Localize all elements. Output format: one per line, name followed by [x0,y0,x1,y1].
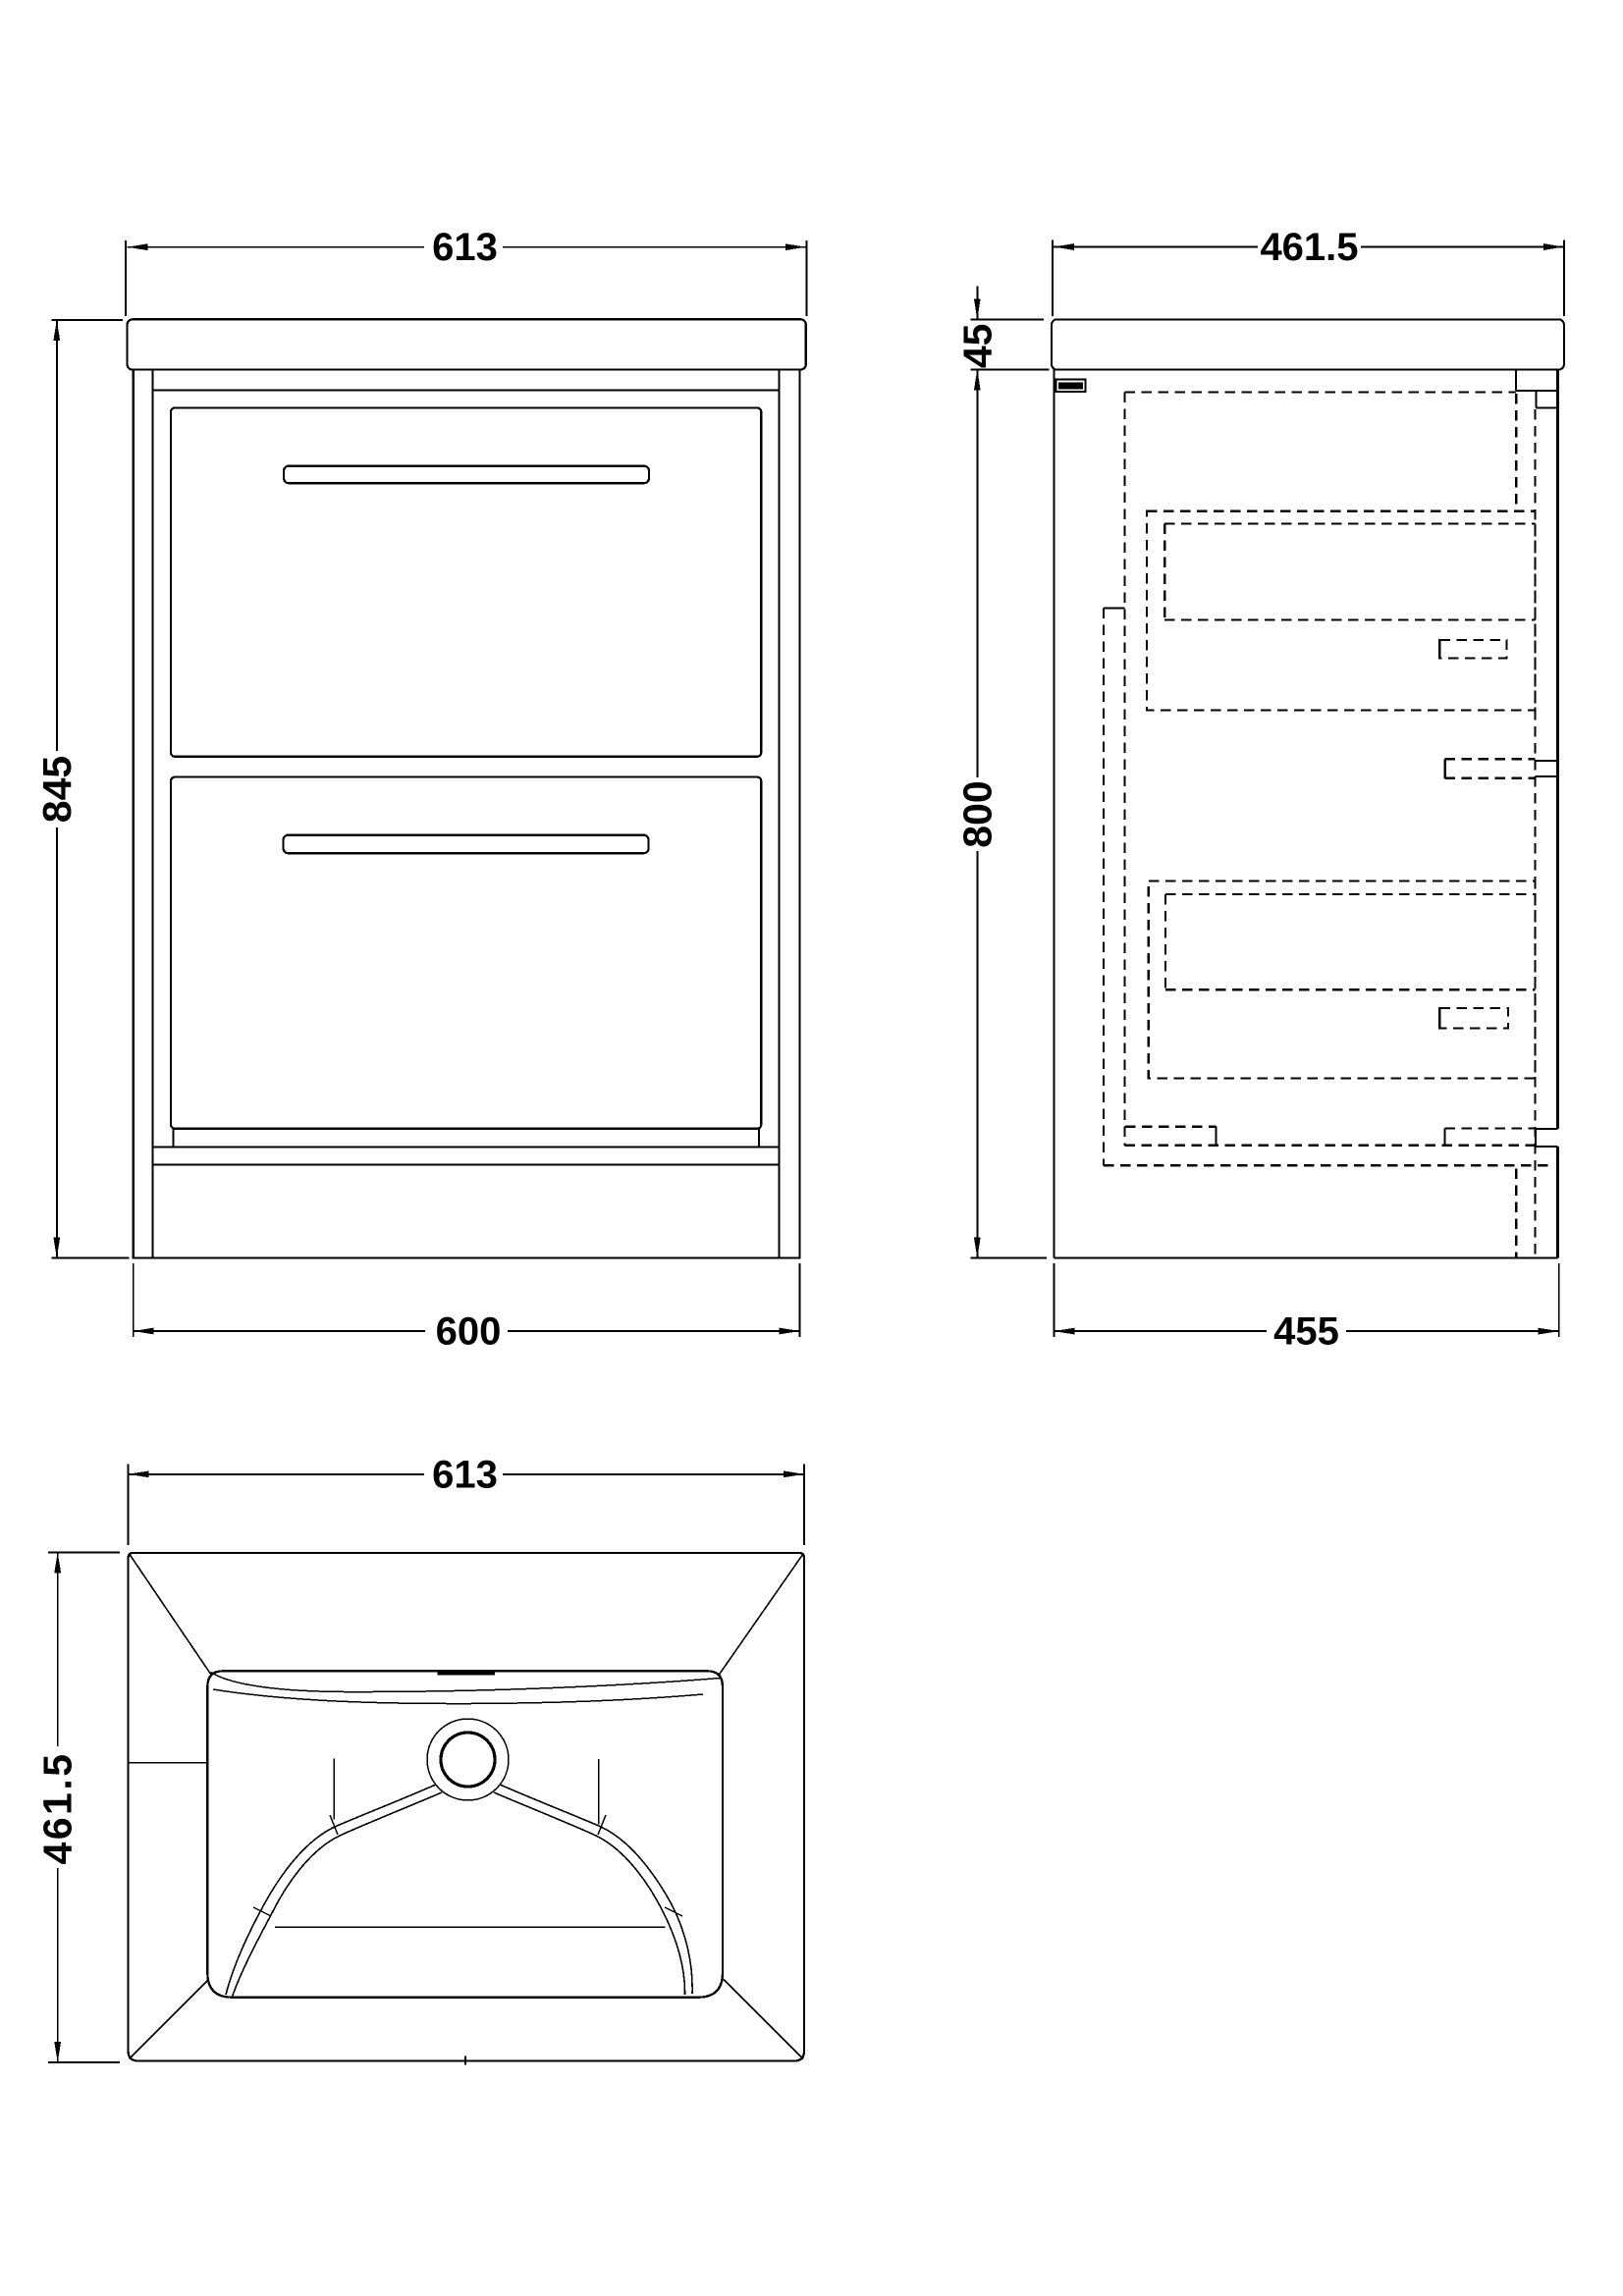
svg-text:613: 613 [432,226,498,269]
svg-text:845: 845 [34,756,80,823]
svg-text:800: 800 [954,780,1000,847]
svg-text:461.5: 461.5 [35,1751,81,1864]
svg-text:600: 600 [436,1310,502,1354]
svg-text:461.5: 461.5 [1260,226,1358,269]
svg-text:455: 455 [1273,1310,1339,1354]
svg-text:45: 45 [954,323,1000,368]
svg-text:613: 613 [432,1453,498,1496]
